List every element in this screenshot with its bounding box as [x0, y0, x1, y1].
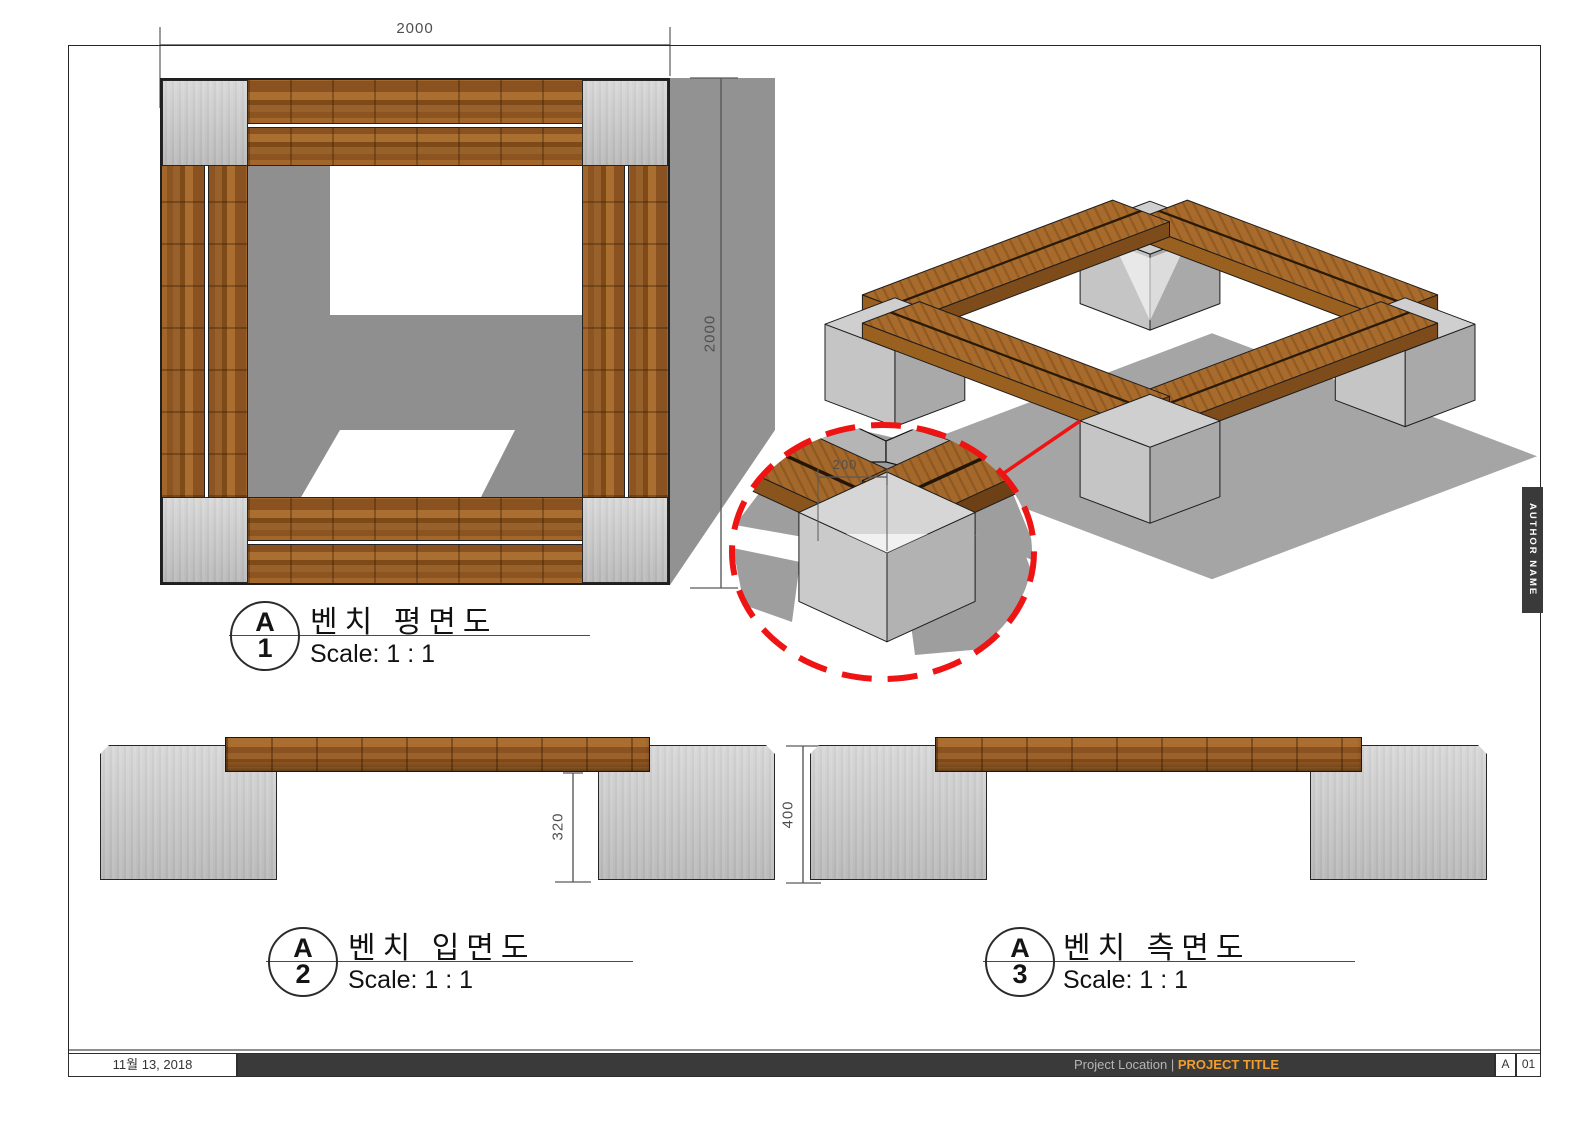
titlebar: 11월 13, 2018 Project Location | PROJECT … — [68, 1053, 1541, 1077]
side-view-marker: A 3 — [985, 927, 1055, 997]
plan-corner-block-se — [582, 497, 668, 583]
dim-plan-height: 2000 — [702, 309, 719, 359]
front-view-scale: Scale: 1 : 1 — [348, 966, 473, 995]
front-elevation-seat-beam — [225, 737, 650, 772]
front-marker-number: 2 — [270, 961, 336, 988]
titlebar-page-number: 01 — [1516, 1053, 1541, 1077]
dim-plan-width: 2000 — [390, 20, 440, 37]
plan-corner-block-ne — [582, 80, 668, 166]
front-view-title: 벤치 입면도 — [348, 923, 536, 967]
author-name-tab: AUTHOR NAME — [1522, 487, 1543, 613]
side-view-scale: Scale: 1 : 1 — [1063, 966, 1188, 995]
dim-front-clearance: 320 — [550, 802, 567, 852]
titlebar-project: Project Location | PROJECT TITLE — [237, 1053, 1495, 1077]
plan-corner-block-sw — [162, 497, 248, 583]
plan-hole-shadow — [248, 166, 584, 499]
plan-marker-letter: A — [232, 609, 298, 636]
plan-view-scale: Scale: 1 : 1 — [310, 640, 435, 669]
plan-marker-number: 1 — [232, 635, 298, 662]
dim-detail-offset: 200 — [820, 457, 870, 472]
plan-plank-gap-top — [248, 123, 584, 128]
drawing-sheet: 2000 2000 200 320 400 A 1 벤치 평면도 Scale: … — [0, 0, 1587, 1122]
plan-plank-gap-left — [204, 166, 209, 497]
titlebar-revision: A — [1495, 1053, 1516, 1077]
plan-view — [160, 78, 670, 585]
plan-plank-gap-bottom — [248, 540, 584, 545]
project-title-label: PROJECT TITLE — [1178, 1057, 1279, 1072]
side-marker-letter: A — [987, 935, 1053, 962]
project-location-label: Project Location — [1074, 1057, 1167, 1072]
side-marker-number: 3 — [987, 961, 1053, 988]
plan-corner-block-nw — [162, 80, 248, 166]
plan-view-title: 벤치 평면도 — [310, 597, 498, 641]
dim-side-height: 400 — [780, 790, 797, 840]
plan-view-marker: A 1 — [230, 601, 300, 671]
project-separator: | — [1171, 1057, 1178, 1072]
titlebar-date: 11월 13, 2018 — [68, 1053, 237, 1077]
side-view-title: 벤치 측면도 — [1063, 923, 1251, 967]
author-name-label: AUTHOR NAME — [1527, 503, 1538, 596]
front-marker-letter: A — [270, 935, 336, 962]
side-elevation-seat-beam — [935, 737, 1362, 772]
plan-plank-gap-right — [624, 166, 629, 497]
front-view-marker: A 2 — [268, 927, 338, 997]
